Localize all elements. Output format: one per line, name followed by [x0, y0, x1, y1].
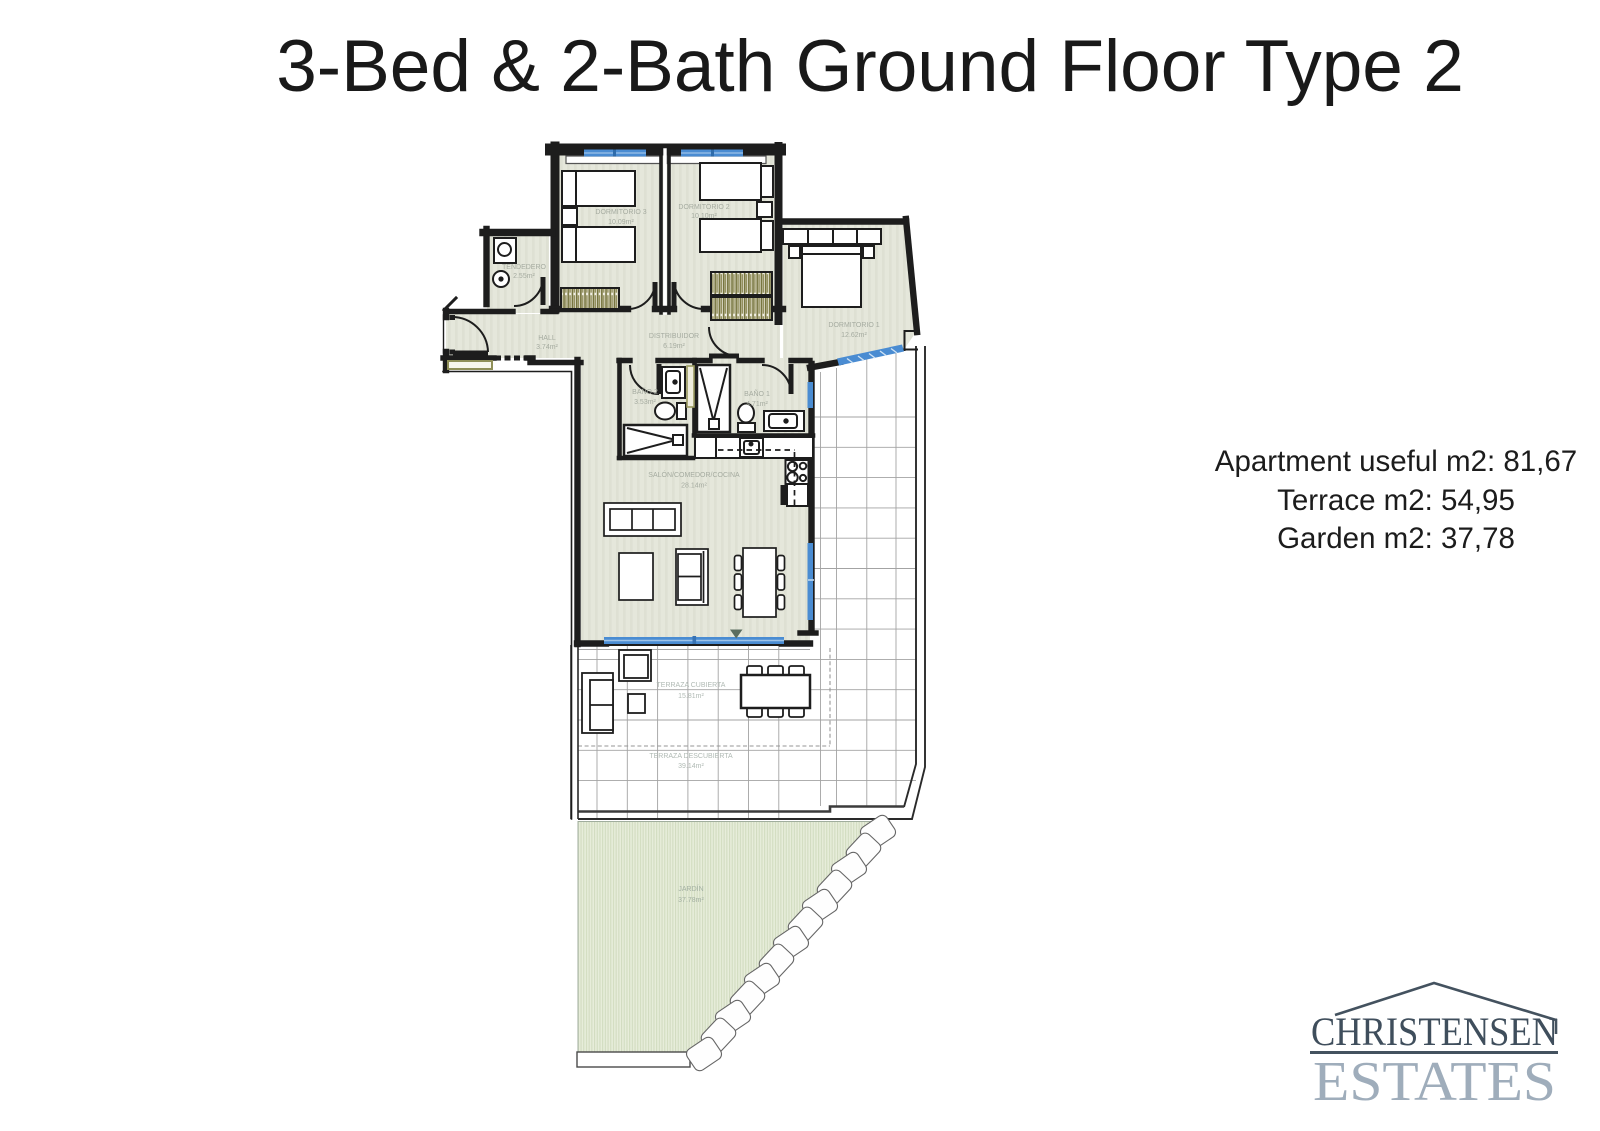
svg-text:3-Bed & 2-Bath Ground Floor Ty: 3-Bed & 2-Bath Ground Floor Type 2 [276, 26, 1464, 107]
svg-text:TERRAZA CUBIERTA: TERRAZA CUBIERTA [657, 682, 726, 689]
svg-text:2.55m²: 2.55m² [513, 273, 535, 280]
svg-text:3.74m²: 3.74m² [536, 344, 558, 351]
svg-text:TERRAZA DESCUBIERTA: TERRAZA DESCUBIERTA [649, 753, 733, 760]
svg-text:DORMITORIO 3: DORMITORIO 3 [595, 209, 646, 216]
svg-text:SALÓN/COMEDOR/COCINA: SALÓN/COMEDOR/COCINA [648, 470, 740, 479]
svg-text:BAÑO 2: BAÑO 2 [632, 387, 658, 396]
svg-text:CHRISTENSEN: CHRISTENSEN [1311, 1009, 1558, 1054]
svg-text:DORMITORIO 2: DORMITORIO 2 [678, 204, 729, 211]
svg-text:37.78m²: 37.78m² [678, 897, 704, 904]
svg-text:Apartment useful m2: 81,67: Apartment useful m2: 81,67 [1215, 445, 1577, 478]
svg-text:JARDÍN: JARDÍN [678, 884, 703, 893]
svg-text:HALL: HALL [538, 335, 556, 342]
svg-text:10.09m²: 10.09m² [608, 219, 634, 226]
svg-text:Garden m2: 37,78: Garden m2: 37,78 [1277, 522, 1515, 555]
svg-text:Terrace m2: 54,95: Terrace m2: 54,95 [1277, 484, 1515, 517]
svg-text:4.71m²: 4.71m² [746, 401, 768, 408]
svg-text:15.81m²: 15.81m² [678, 693, 704, 700]
svg-text:39.14m²: 39.14m² [678, 763, 704, 770]
svg-text:DORMITORIO 1: DORMITORIO 1 [828, 322, 879, 329]
svg-text:BAÑO 1: BAÑO 1 [744, 389, 770, 398]
svg-text:10.10m²: 10.10m² [691, 213, 717, 220]
svg-text:28.14m²: 28.14m² [681, 483, 707, 490]
svg-text:3.53m²: 3.53m² [634, 399, 656, 406]
svg-text:12.62m²: 12.62m² [841, 332, 867, 339]
svg-text:ESTATES: ESTATES [1313, 1051, 1556, 1113]
svg-text:TENDEDERO: TENDEDERO [502, 264, 547, 271]
svg-text:6.19m²: 6.19m² [663, 343, 685, 350]
svg-text:DISTRIBUIDOR: DISTRIBUIDOR [649, 333, 699, 340]
